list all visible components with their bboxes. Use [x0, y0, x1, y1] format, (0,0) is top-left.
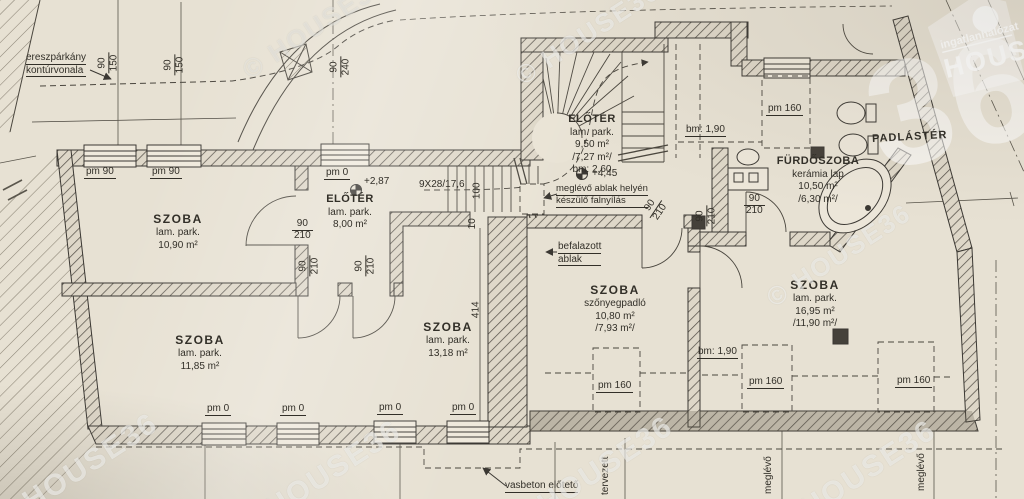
room-floor: lam. park. — [396, 335, 500, 348]
room-floor: lam. park. — [543, 127, 641, 140]
room-name: SZOBA — [396, 320, 500, 335]
note-line: ablak — [558, 254, 601, 267]
room-name: SZOBA — [563, 283, 667, 298]
room-area: 16,95 m² — [763, 306, 867, 319]
room-floor: kerámia lap — [762, 169, 874, 182]
dim-den: 150 — [174, 55, 186, 76]
dim-num: 90 — [695, 210, 706, 221]
note-walled-window: befalazott ablak — [558, 241, 601, 266]
dim-num: 90 — [749, 194, 760, 205]
level-value: +2,87 — [364, 176, 389, 188]
sill-label: pm 160 — [766, 103, 803, 116]
room-area-net: /7,27 m²/ — [543, 152, 641, 165]
floorplan-scan: 36 ingatlanhálózat HOUSE SZOBA lam. park… — [0, 0, 1024, 499]
south-wall-shade — [530, 411, 978, 431]
dim-90-210: 90 210 — [298, 256, 320, 277]
room-label-eloter-1: ELŐTÉR lam. park. 8,00 m² — [300, 193, 400, 232]
dim-num: 90 — [298, 260, 309, 271]
sill-label: pm 0 — [280, 403, 306, 416]
canopy-outline — [96, 447, 1006, 468]
room-name: SZOBA — [763, 278, 867, 293]
room-name: ELŐTÉR — [543, 113, 641, 127]
sill-label: pm 160 — [596, 380, 633, 393]
dim-den: 210 — [706, 206, 718, 227]
height-label: bm: 1,90 — [697, 346, 738, 359]
room-label-szoba-3: SZOBA lam. park. 13,18 m² — [396, 320, 500, 360]
room-area-net: /7,93 m²/ — [563, 323, 667, 336]
note-planned: tervezett — [600, 457, 612, 495]
note-existing: meglévő — [916, 453, 928, 491]
room-floor: lam. park. — [763, 293, 867, 306]
note-eaves: ereszpárkány kontúrvonala — [26, 52, 86, 77]
room-area: 10,50 m² — [762, 181, 874, 194]
dim-90-210: 90 210 — [695, 206, 717, 227]
dim-90-210: 90 210 — [354, 256, 376, 277]
room-name: SZOBA — [148, 333, 252, 348]
room-label-furdoszoba: FÜRDŐSZOBA kerámia lap 10,50 m² /6,30 m²… — [762, 155, 874, 206]
dim-num: 90 — [329, 61, 340, 72]
dim-90-240: 90 240 — [329, 57, 351, 78]
note-line: készülő falnyílás — [556, 196, 648, 208]
dim-90-150: 90 150 — [163, 55, 185, 76]
note-line: ereszpárkány — [26, 52, 86, 65]
dim-10: 10 — [467, 218, 479, 229]
room-area: 9,50 m² — [543, 139, 641, 152]
room-name: ELŐTÉR — [300, 193, 400, 207]
room-area: 13,18 m² — [396, 348, 500, 361]
room-label-szoba-4: SZOBA szőnyegpadló 10,80 m² /7,93 m²/ — [563, 283, 667, 336]
dim-num: 90 — [297, 219, 308, 230]
room-name: FÜRDŐSZOBA — [762, 155, 874, 169]
room-area: 10,80 m² — [563, 311, 667, 324]
dim-414: 414 — [471, 301, 483, 318]
room-floor: szőnyegpadló — [563, 298, 667, 311]
dim-den: 210 — [309, 256, 321, 277]
room-floor: lam. park. — [300, 207, 400, 220]
dim-den: 210 — [744, 205, 765, 217]
sill-label: pm 0 — [324, 167, 350, 180]
eaves-curve — [32, 4, 892, 150]
stair-dimension: 9X28/17,6 — [419, 179, 465, 191]
sill-label: pm 160 — [895, 375, 932, 388]
room-area: 8,00 m² — [300, 219, 400, 232]
dim-100: 100 — [472, 182, 484, 199]
dim-num: 90 — [163, 59, 174, 70]
note-line: befalazott — [558, 241, 601, 254]
chimney — [833, 329, 848, 344]
room-area-net: /6,30 m²/ — [762, 194, 874, 207]
sill-label: pm 0 — [377, 402, 403, 415]
note-wall-opening: meglévő ablak helyén készülő falnyílás — [556, 184, 648, 208]
dim-90-150: 90 150 — [97, 53, 119, 74]
room-label-szoba-2: SZOBA lam. park. 11,85 m² — [148, 333, 252, 373]
height-label: bm: 1,90 — [685, 124, 726, 137]
note-canopy: vasbeton előtető — [505, 480, 578, 493]
room-area: 10,90 m² — [126, 240, 230, 253]
sill-label: pm 90 — [84, 166, 116, 179]
room-name: SZOBA — [126, 212, 230, 227]
room-label-szoba-5: SZOBA lam. park. 16,95 m² /11,90 m²/ — [763, 278, 867, 331]
sill-label: pm 0 — [205, 403, 231, 416]
room-area-net: /11,90 m²/ — [763, 318, 867, 331]
dim-den: 210 — [292, 230, 313, 242]
level-value: +4,45 — [592, 168, 617, 180]
dim-den: 150 — [108, 53, 120, 74]
room-floor: lam. park. — [148, 348, 252, 361]
room-floor: lam. park. — [126, 227, 230, 240]
dim-90-210: 90 210 — [744, 194, 765, 216]
dim-den: 210 — [365, 256, 377, 277]
sill-label: pm 160 — [747, 376, 784, 389]
dim-num: 90 — [97, 57, 108, 68]
dim-den: 240 — [340, 57, 352, 78]
room-area: 11,85 m² — [148, 361, 252, 374]
sink-icon — [737, 149, 759, 165]
note-existing: meglévő — [763, 456, 775, 494]
note-line: kontúrvonala — [26, 65, 86, 78]
dim-num: 90 — [354, 260, 365, 271]
dim-90-210: 90 210 — [292, 219, 313, 241]
room-label-szoba-1: SZOBA lam. park. 10,90 m² — [126, 212, 230, 252]
sill-label: pm 0 — [450, 402, 476, 415]
note-line: vasbeton előtető — [505, 480, 578, 493]
sill-label: pm 90 — [150, 166, 182, 179]
